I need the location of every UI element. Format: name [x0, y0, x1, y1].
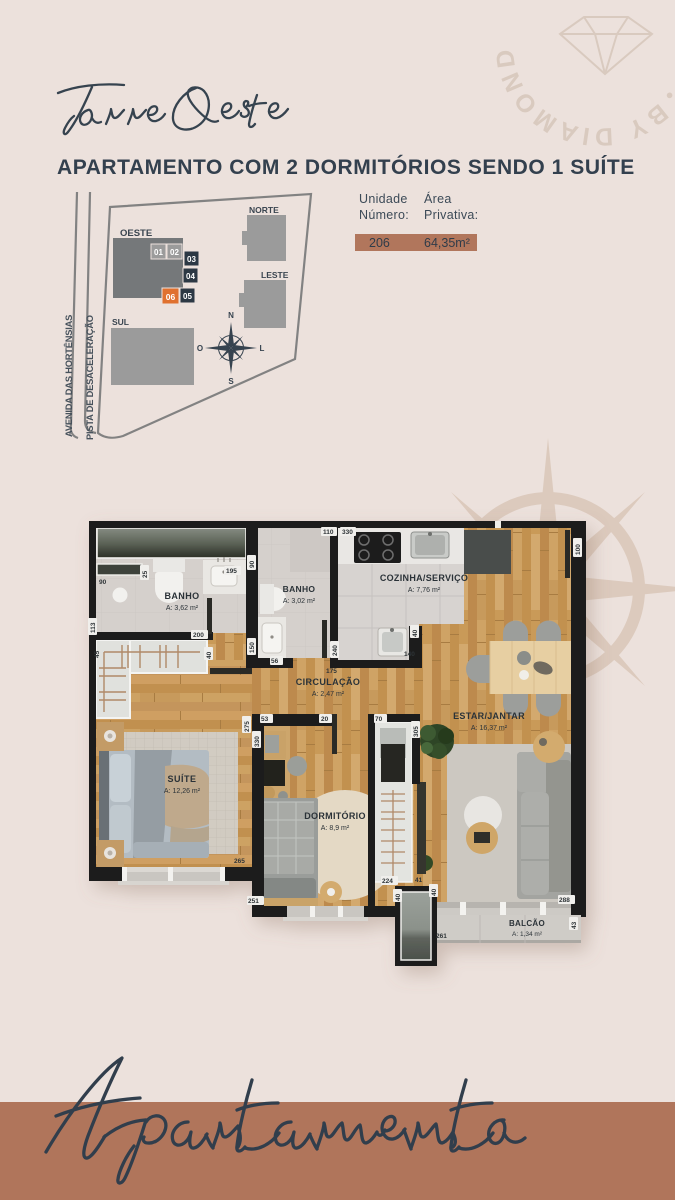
svg-text:LESTE: LESTE	[261, 270, 289, 280]
svg-text:CIRCULAÇÃO: CIRCULAÇÃO	[296, 677, 361, 687]
svg-text:224: 224	[382, 878, 393, 885]
svg-text:40: 40	[412, 629, 419, 637]
svg-text:S: S	[228, 377, 234, 386]
svg-text:N: N	[228, 311, 234, 320]
svg-text:A: 16,37 m²: A: 16,37 m²	[471, 725, 508, 732]
svg-text:25: 25	[142, 570, 149, 578]
svg-text:Privativa:: Privativa:	[424, 208, 478, 222]
svg-text:NORTE: NORTE	[249, 205, 279, 215]
svg-text:02: 02	[170, 248, 179, 257]
svg-text:53: 53	[261, 716, 269, 723]
svg-text:113: 113	[90, 622, 97, 633]
svg-text:43: 43	[571, 921, 578, 929]
svg-text:A: 3,62 m²: A: 3,62 m²	[166, 605, 199, 612]
svg-text:200: 200	[193, 632, 204, 639]
svg-text:BALCÃO: BALCÃO	[509, 919, 545, 928]
svg-text:288: 288	[559, 897, 570, 904]
svg-text:A: 7,76 m²: A: 7,76 m²	[408, 587, 441, 594]
svg-text:64,35m²: 64,35m²	[424, 236, 470, 250]
svg-text:03: 03	[187, 255, 196, 264]
svg-text:L: L	[260, 344, 265, 353]
svg-text:261: 261	[436, 933, 447, 940]
svg-text:O: O	[197, 344, 203, 353]
svg-text:A: 3,02 m²: A: 3,02 m²	[283, 598, 316, 605]
svg-text:330: 330	[254, 736, 261, 747]
svg-text:150: 150	[249, 642, 256, 653]
svg-text:ESTAR/JANTAR: ESTAR/JANTAR	[453, 711, 525, 721]
svg-text:04: 04	[186, 272, 195, 281]
svg-text:DORMITÓRIO: DORMITÓRIO	[304, 810, 366, 821]
svg-text:195: 195	[226, 568, 237, 575]
svg-text:APARTAMENTO COM 2 DORMITÓRIOS: APARTAMENTO COM 2 DORMITÓRIOS SENDO 1 SU…	[57, 155, 635, 179]
svg-text:AVENIDA DAS HORTÊNSIAS: AVENIDA DAS HORTÊNSIAS	[63, 315, 74, 437]
svg-text:265: 265	[234, 858, 245, 865]
svg-text:Unidade: Unidade	[359, 192, 408, 206]
svg-text:A: 2,47 m²: A: 2,47 m²	[312, 691, 345, 698]
svg-text:20: 20	[321, 716, 329, 723]
svg-text:305: 305	[413, 726, 420, 737]
svg-text:40: 40	[431, 888, 438, 896]
svg-text:90: 90	[249, 560, 256, 568]
svg-text:140: 140	[404, 651, 415, 658]
svg-text:251: 251	[248, 898, 259, 905]
svg-text:06: 06	[166, 292, 176, 302]
svg-text:56: 56	[271, 658, 279, 665]
svg-text:A: 1,34 m²: A: 1,34 m²	[512, 931, 543, 938]
svg-text:90: 90	[99, 579, 107, 586]
svg-text:40: 40	[395, 893, 402, 901]
svg-text:41: 41	[415, 877, 423, 884]
svg-text:05: 05	[183, 292, 192, 301]
svg-text:Área: Área	[424, 191, 452, 206]
svg-text:275: 275	[244, 721, 251, 732]
svg-text:45: 45	[94, 650, 101, 658]
svg-text:BANHO: BANHO	[283, 584, 316, 594]
svg-text:40: 40	[206, 651, 213, 659]
svg-text:01: 01	[154, 248, 163, 257]
svg-text:110: 110	[323, 529, 334, 536]
svg-text:240: 240	[332, 645, 339, 656]
svg-text:100: 100	[575, 544, 582, 555]
svg-text:175: 175	[326, 668, 337, 675]
svg-text:206: 206	[369, 236, 390, 250]
svg-text:70: 70	[375, 716, 383, 723]
svg-text:Número:: Número:	[359, 208, 409, 222]
svg-text:SUL: SUL	[112, 317, 129, 327]
svg-text:BANHO: BANHO	[165, 591, 200, 601]
svg-text:A: 8,9 m²: A: 8,9 m²	[321, 825, 350, 832]
svg-text:COZINHA/SERVIÇO: COZINHA/SERVIÇO	[380, 573, 468, 583]
svg-text:PISTA DE DESACELERAÇÃO: PISTA DE DESACELERAÇÃO	[85, 315, 95, 440]
svg-text:OESTE: OESTE	[120, 228, 152, 239]
svg-text:330: 330	[342, 529, 353, 536]
svg-text:A: 12,26 m²: A: 12,26 m²	[164, 788, 201, 795]
svg-text:SUÍTE: SUÍTE	[167, 774, 196, 784]
